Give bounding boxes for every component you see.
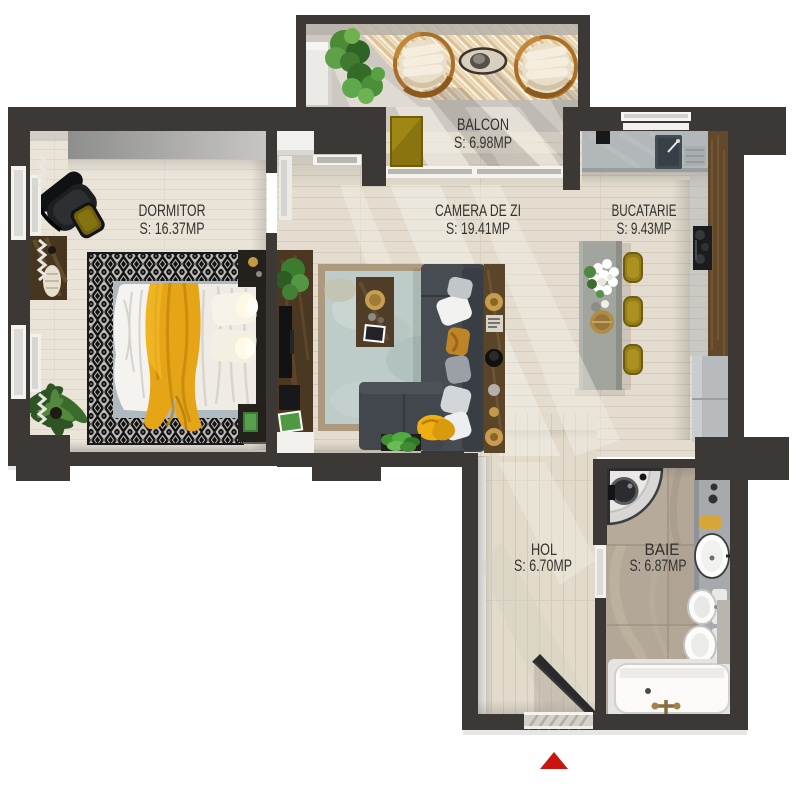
svg-text:BUCATARIE: BUCATARIE xyxy=(612,201,677,220)
svg-text:S: 9.43MP: S: 9.43MP xyxy=(617,219,672,238)
svg-text:DORMITOR: DORMITOR xyxy=(139,201,206,220)
svg-text:CAMERA DE ZI: CAMERA DE ZI xyxy=(435,201,521,220)
svg-text:S: 6.87MP: S: 6.87MP xyxy=(630,556,687,575)
svg-text:S: 19.41MP: S: 19.41MP xyxy=(446,219,510,238)
svg-text:BALCON: BALCON xyxy=(457,115,509,134)
svg-text:S: 16.37MP: S: 16.37MP xyxy=(140,219,205,238)
svg-text:S: 6.70MP: S: 6.70MP xyxy=(514,556,572,575)
svg-text:S: 6.98MP: S: 6.98MP xyxy=(454,133,512,152)
